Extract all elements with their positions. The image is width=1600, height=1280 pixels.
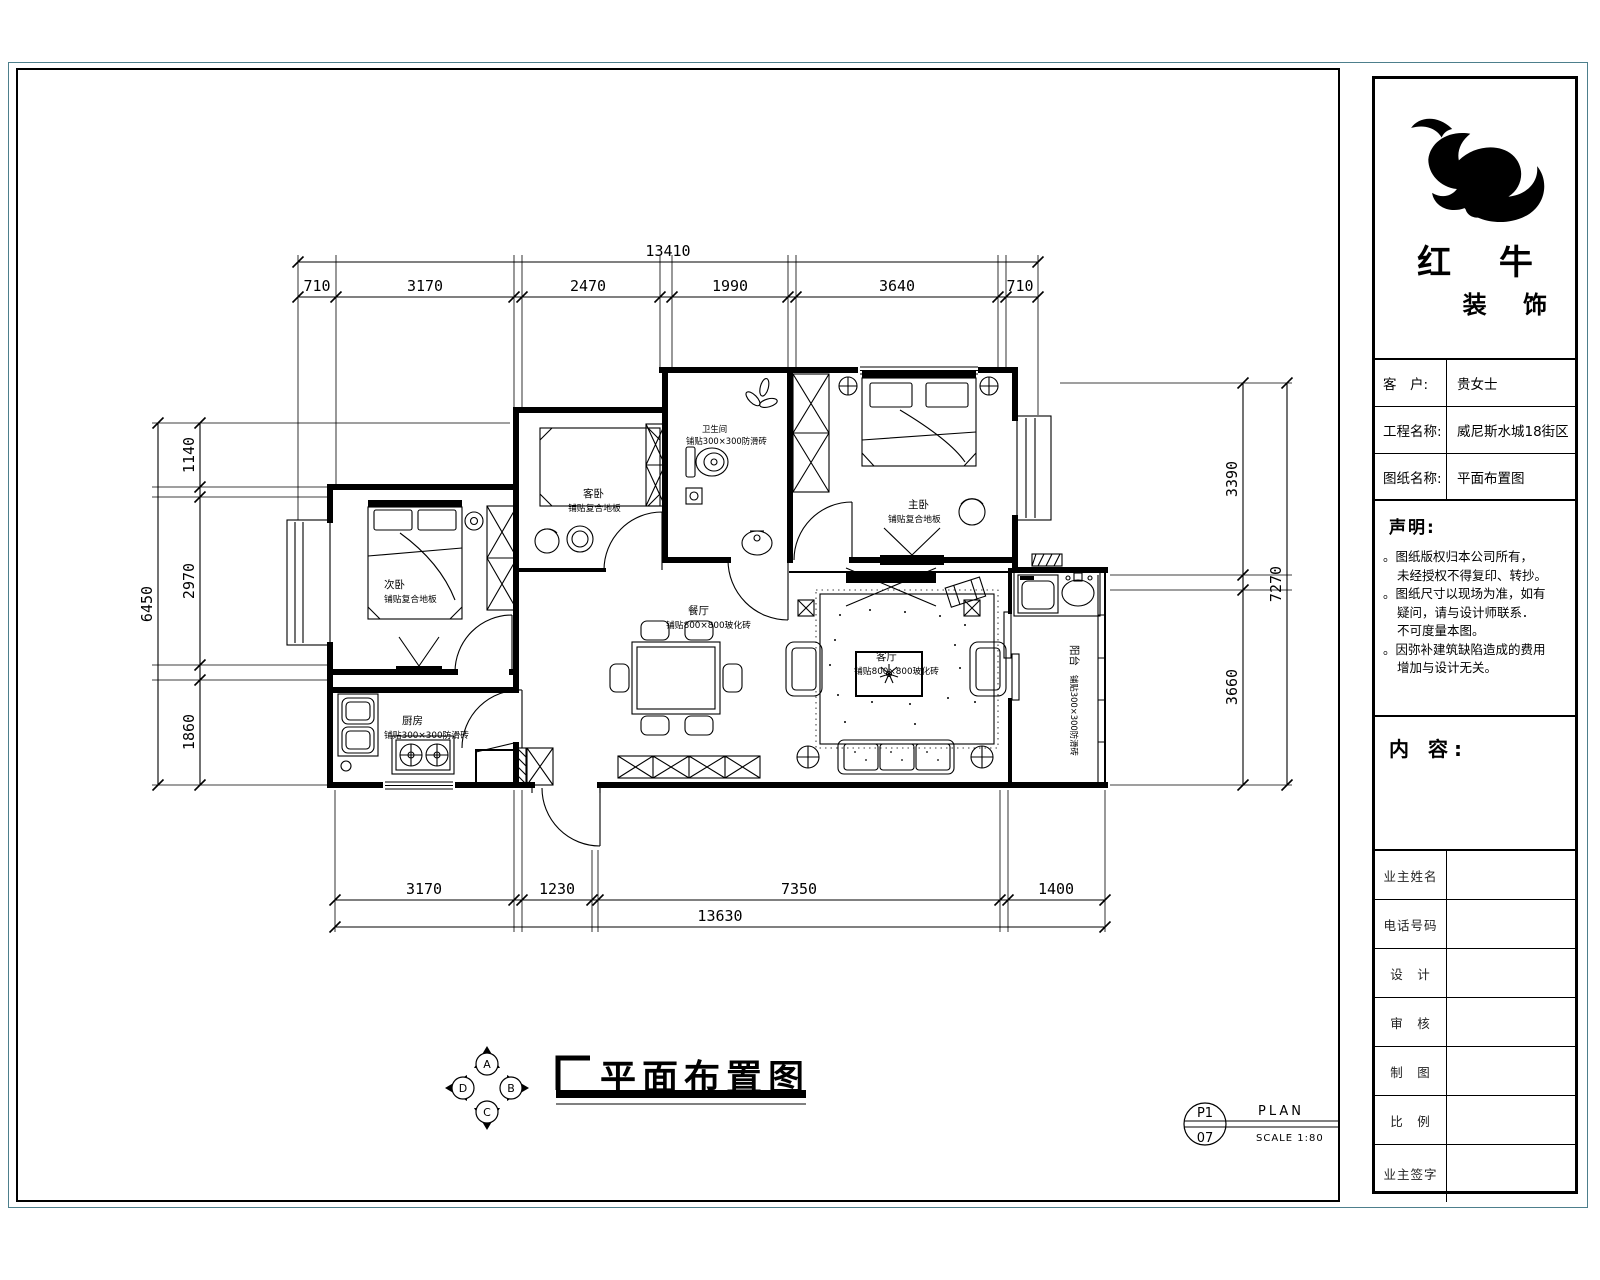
- statement-line: 不可度量本图。: [1375, 622, 1575, 641]
- tv-icon: [846, 573, 936, 583]
- sign-row-scale: 比 例: [1375, 1096, 1575, 1145]
- bay-window-left: [287, 520, 330, 645]
- dim-bottom-seg: 3170: [406, 880, 442, 898]
- room-label-guest-bedroom: 客卧: [583, 487, 604, 500]
- statement-line: 。图纸尺寸以现场为准，如有: [1375, 585, 1575, 604]
- furniture-master-bedroom: [839, 371, 998, 565]
- field-value: 威尼斯水城18街区: [1447, 420, 1575, 440]
- fan-icon: [741, 374, 783, 413]
- sign-row-owner-signature: 业主签字: [1375, 1145, 1575, 1202]
- sofa: [838, 740, 954, 774]
- dim-right-seg: 3390: [1223, 461, 1241, 497]
- dim-top-seg: 3170: [407, 277, 443, 295]
- dim-bottom-seg: 1230: [539, 880, 575, 898]
- armchair: [970, 642, 1006, 696]
- furniture-balcony: [1014, 572, 1100, 616]
- dim-bottom-seg: 7350: [781, 880, 817, 898]
- dim-left-seg: 1140: [180, 437, 198, 473]
- field-label: 图纸名称:: [1375, 454, 1447, 500]
- lamp-icon: [465, 512, 483, 530]
- title-fields: 客 户: 贵女士 工程名称: 威尼斯水城18街区 图纸名称: 平面布置图: [1375, 358, 1575, 500]
- chair-icon: [641, 621, 669, 640]
- statement-line: 。图纸版权归本公司所有，: [1375, 548, 1575, 567]
- room-finish-second-bedroom: 铺贴复合地板: [384, 593, 437, 605]
- company-name: 红 牛: [1375, 235, 1575, 284]
- sign-label: 业主签字: [1375, 1145, 1447, 1202]
- room-label-second-bedroom: 次卧: [384, 578, 405, 591]
- dim-right-total: 7270: [1267, 566, 1285, 602]
- sign-value: [1447, 851, 1575, 899]
- sink-icon: [1062, 580, 1094, 606]
- furniture-dining: [610, 621, 742, 735]
- ref-label: PLAN: [1258, 1104, 1304, 1119]
- room-finish-guest-bedroom: 铺贴复合地板: [568, 502, 621, 514]
- dimension-lines: 13410 710 3170 2470 1990 3640 710 3170 1…: [138, 242, 1293, 933]
- tv-icon: [880, 555, 944, 565]
- armchair: [786, 642, 822, 696]
- dim-bottom-total: 13630: [697, 907, 742, 925]
- sign-row-drafter: 制 图: [1375, 1047, 1575, 1096]
- dim-left-seg: 1860: [180, 714, 198, 750]
- dim-top-seg: 710: [1006, 277, 1033, 295]
- sign-row-owner-name: 业主姓名: [1375, 851, 1575, 900]
- ref-number-bottom: 07: [1197, 1131, 1214, 1146]
- sign-row-designer: 设 计: [1375, 949, 1575, 998]
- tv-icon: [396, 666, 442, 675]
- sign-value: [1447, 1047, 1575, 1095]
- dim-top-total: 13410: [645, 242, 690, 260]
- sign-label: 制 图: [1375, 1047, 1447, 1095]
- ref-number-top: P1: [1197, 1106, 1213, 1121]
- drawing-title: 平面布置图: [600, 1058, 810, 1099]
- sign-value: [1447, 900, 1575, 948]
- compass-letter-c: C: [483, 1106, 491, 1119]
- dim-top-seg: 2470: [570, 277, 606, 295]
- room-finish-balcony: 铺贴300×300防滑砖: [1069, 675, 1079, 756]
- sign-value: [1447, 1145, 1575, 1202]
- sign-row-phone: 电话号码: [1375, 900, 1575, 949]
- statement-line: 增加与设计无关。: [1375, 659, 1575, 678]
- field-label: 客 户:: [1375, 360, 1447, 406]
- furniture-bathroom: [686, 374, 784, 555]
- dim-left-total: 6450: [138, 586, 156, 622]
- room-label-kitchen: 厨房: [402, 714, 423, 727]
- field-label: 工程名称:: [1375, 407, 1447, 453]
- statement-line: 。因弥补建筑缺陷造成的费用: [1375, 641, 1575, 660]
- company-subtitle: 装 饰: [1463, 285, 1561, 320]
- statement-title: 声明:: [1389, 513, 1575, 538]
- statement-section: 声明: 。图纸版权归本公司所有， 未经授权不得复印、转抄。 。图纸尺寸以现场为准…: [1375, 499, 1575, 715]
- room-finish-dining: 铺贴800×800玻化砖: [666, 619, 751, 631]
- drawing-title-group: 平面布置图: [556, 1058, 810, 1104]
- field-row-sheet: 图纸名称: 平面布置图: [1375, 454, 1575, 500]
- floor-plan: 次卧 铺贴复合地板 客卧 铺贴复合地板 卫生间 铺贴300×300防滑砖 主卧 …: [0, 0, 1600, 1280]
- sign-label: 审 核: [1375, 998, 1447, 1046]
- dim-top-seg: 3640: [879, 277, 915, 295]
- dim-bottom-seg: 1400: [1038, 880, 1074, 898]
- sign-label: 设 计: [1375, 949, 1447, 997]
- room-label-master-bedroom: 主卧: [908, 498, 929, 511]
- room-finish-kitchen: 铺贴300×300防滑砖: [384, 729, 469, 741]
- sign-value: [1447, 1096, 1575, 1144]
- room-label-living: 客厅: [876, 650, 897, 663]
- field-value: 贵女士: [1447, 373, 1575, 393]
- sign-value: [1447, 998, 1575, 1046]
- toilet-icon: [686, 447, 695, 477]
- room-finish-living: 铺贴800×800玻化砖: [854, 665, 939, 677]
- field-row-client: 客 户: 贵女士: [1375, 360, 1575, 407]
- dim-right-seg: 3660: [1223, 669, 1241, 705]
- title-block: 红 牛 装 饰 客 户: 贵女士 工程名称: 威尼斯水城18街区 图纸名称: 平…: [1372, 76, 1578, 1194]
- bay-window-master: [1017, 416, 1051, 520]
- statement-line: 疑问，请与设计师联系．: [1375, 604, 1575, 623]
- dim-top-seg: 710: [303, 277, 330, 295]
- compass-letter-b: B: [507, 1082, 515, 1095]
- room-finish-bathroom: 铺贴300×300防滑砖: [686, 436, 767, 446]
- field-value: 平面布置图: [1447, 467, 1575, 487]
- statement-line: 未经授权不得复印、转抄。: [1375, 567, 1575, 586]
- sign-value: [1447, 949, 1575, 997]
- dim-left-seg: 2970: [180, 563, 198, 599]
- chair-icon: [959, 499, 985, 525]
- content-section: 内 容:: [1375, 715, 1575, 849]
- signature-rows: 业主姓名 电话号码 设 计 审 核 制 图 比 例 业主签字: [1375, 849, 1575, 1202]
- room-label-dining: 餐厅: [688, 604, 709, 617]
- company-logo-icon: [1397, 107, 1555, 231]
- room-finish-master-bedroom: 铺贴复合地板: [888, 513, 941, 525]
- table-icon: [567, 526, 593, 552]
- room-label-balcony: 阳台: [1068, 645, 1081, 666]
- field-row-project: 工程名称: 威尼斯水城18街区: [1375, 407, 1575, 454]
- compass-symbol: A B C D: [445, 1046, 529, 1130]
- ref-scale: SCALE 1:80: [1256, 1133, 1324, 1144]
- sliding-door: [1004, 612, 1011, 658]
- compass-letter-a: A: [483, 1058, 491, 1071]
- compass-letter-d: D: [459, 1082, 467, 1095]
- room-label-bathroom: 卫生间: [702, 424, 727, 434]
- sign-row-reviewer: 审 核: [1375, 998, 1575, 1047]
- drawing-ref-bubble: P1 07 PLAN SCALE 1:80: [1184, 1103, 1338, 1146]
- sign-label: 比 例: [1375, 1096, 1447, 1144]
- sign-label: 业主姓名: [1375, 851, 1447, 899]
- content-label: 内 容:: [1389, 733, 1575, 762]
- dim-top-seg: 1990: [712, 277, 748, 295]
- sign-label: 电话号码: [1375, 900, 1447, 948]
- dining-table: [632, 642, 720, 714]
- fridge-icon: [476, 750, 514, 783]
